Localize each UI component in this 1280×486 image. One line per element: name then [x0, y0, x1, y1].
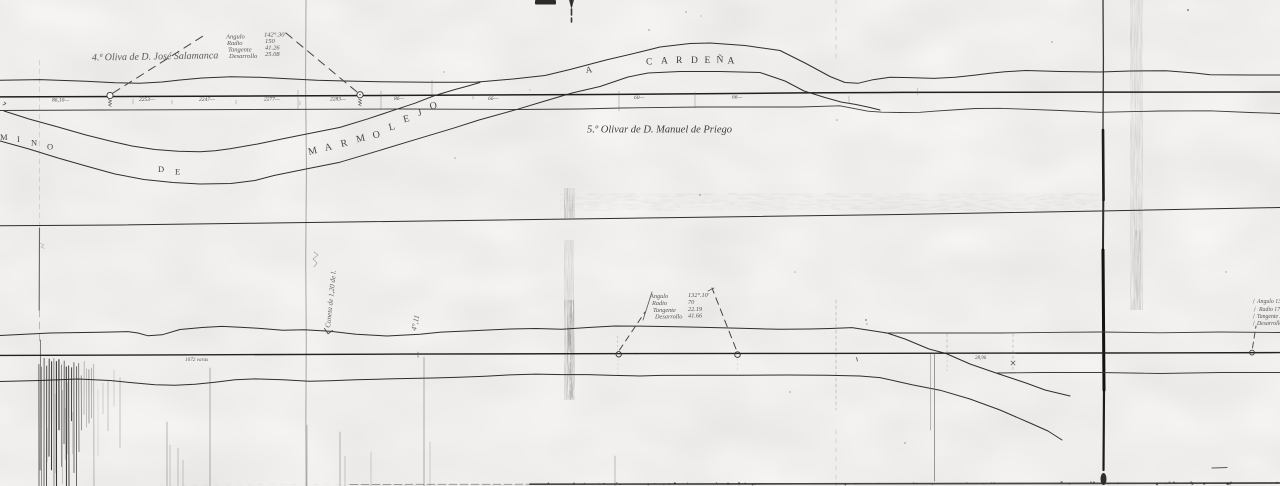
svg-text:Tangente 2: Tangente 2	[1257, 314, 1280, 320]
svg-text:70: 70	[688, 299, 695, 306]
svg-text:M: M	[0, 132, 8, 142]
svg-text:28,96: 28,96	[975, 356, 987, 361]
svg-text:66—: 66—	[732, 95, 743, 101]
svg-text:2247—: 2247—	[199, 96, 215, 103]
svg-text:5.º Olivar de D. Manuel de Pri: 5.º Olivar de D. Manuel de Priego	[587, 125, 732, 136]
svg-text:1072 varas: 1072 varas	[185, 357, 208, 363]
svg-text:R: R	[676, 56, 683, 66]
svg-text:2253—: 2253—	[139, 97, 155, 103]
svg-text:C: C	[646, 58, 652, 68]
svg-text:41.66: 41.66	[688, 313, 703, 320]
svg-text:Desarrollo: Desarrollo	[228, 53, 258, 60]
svg-text:D: D	[691, 56, 698, 66]
svg-text:N: N	[31, 138, 37, 148]
svg-text:Angulo: Angulo	[649, 293, 668, 300]
svg-text:60—: 60—	[634, 95, 645, 101]
svg-text:86—: 86—	[394, 96, 405, 102]
svg-text:Desarrollo: Desarrollo	[1256, 321, 1280, 327]
svg-text:E: E	[175, 167, 180, 177]
svg-text:I: I	[17, 134, 20, 144]
svg-text:Angulo 13: Angulo 13	[1256, 299, 1280, 305]
svg-text:Ñ: Ñ	[717, 54, 724, 66]
svg-text:A: A	[661, 57, 668, 67]
svg-text:132°.10′: 132°.10′	[688, 292, 710, 299]
svg-text:D: D	[158, 164, 164, 174]
svg-text:66—: 66—	[488, 96, 499, 102]
svg-text:2283—: 2283—	[330, 96, 346, 102]
svg-text:25.08: 25.08	[265, 51, 280, 58]
svg-text:86,10—: 86,10—	[52, 98, 69, 104]
svg-text:Radio: Radio	[651, 300, 667, 307]
svg-text:Radio 17: Radio 17	[1258, 307, 1280, 313]
svg-text:2277—: 2277—	[264, 97, 280, 103]
svg-text:E: E	[705, 56, 711, 66]
svg-text:A: A	[728, 57, 735, 67]
svg-text:Desarrollo: Desarrollo	[654, 314, 682, 321]
svg-text:4.ª Oliva de D. José Salamanca: 4.ª Oliva de D. José Salamanca	[92, 50, 219, 63]
svg-text:O: O	[47, 142, 53, 152]
